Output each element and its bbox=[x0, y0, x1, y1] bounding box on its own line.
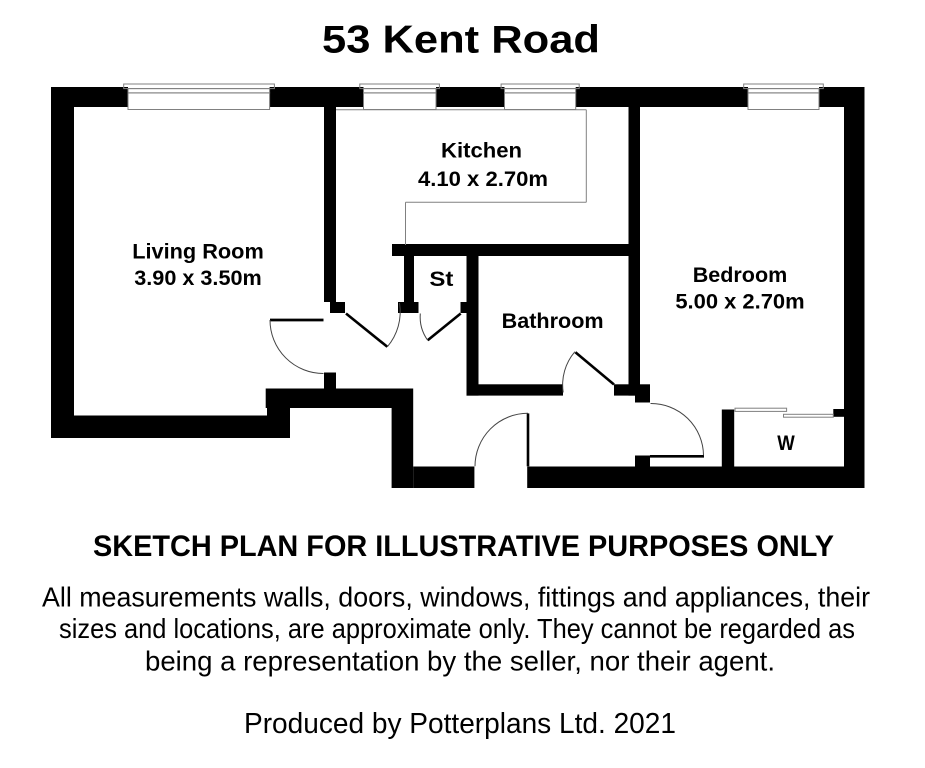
svg-text:St: St bbox=[429, 267, 453, 291]
svg-text:4.10 x 2.70m: 4.10 x 2.70m bbox=[418, 167, 548, 191]
svg-text:Kitchen: Kitchen bbox=[441, 139, 522, 163]
svg-text:Produced by Potterplans Ltd. 2: Produced by Potterplans Ltd. 2021 bbox=[244, 708, 676, 740]
svg-text:53 Kent Road: 53 Kent Road bbox=[322, 19, 600, 62]
svg-text:All measurements walls, doors,: All measurements walls, doors, windows, … bbox=[42, 582, 870, 613]
svg-text:Bedroom: Bedroom bbox=[693, 263, 788, 287]
svg-text:W: W bbox=[777, 431, 795, 455]
svg-text:SKETCH PLAN FOR ILLUSTRATIVE P: SKETCH PLAN FOR ILLUSTRATIVE PURPOSES ON… bbox=[93, 530, 834, 563]
svg-text:sizes and locations, are appro: sizes and locations, are approximate onl… bbox=[59, 613, 855, 644]
svg-text:Living Room: Living Room bbox=[132, 240, 264, 264]
svg-text:Bathroom: Bathroom bbox=[502, 309, 604, 333]
svg-text:3.90 x 3.50m: 3.90 x 3.50m bbox=[134, 266, 262, 290]
svg-text:being a representation by the: being a representation by the seller, no… bbox=[145, 646, 775, 677]
svg-text:5.00 x 2.70m: 5.00 x 2.70m bbox=[675, 290, 804, 314]
